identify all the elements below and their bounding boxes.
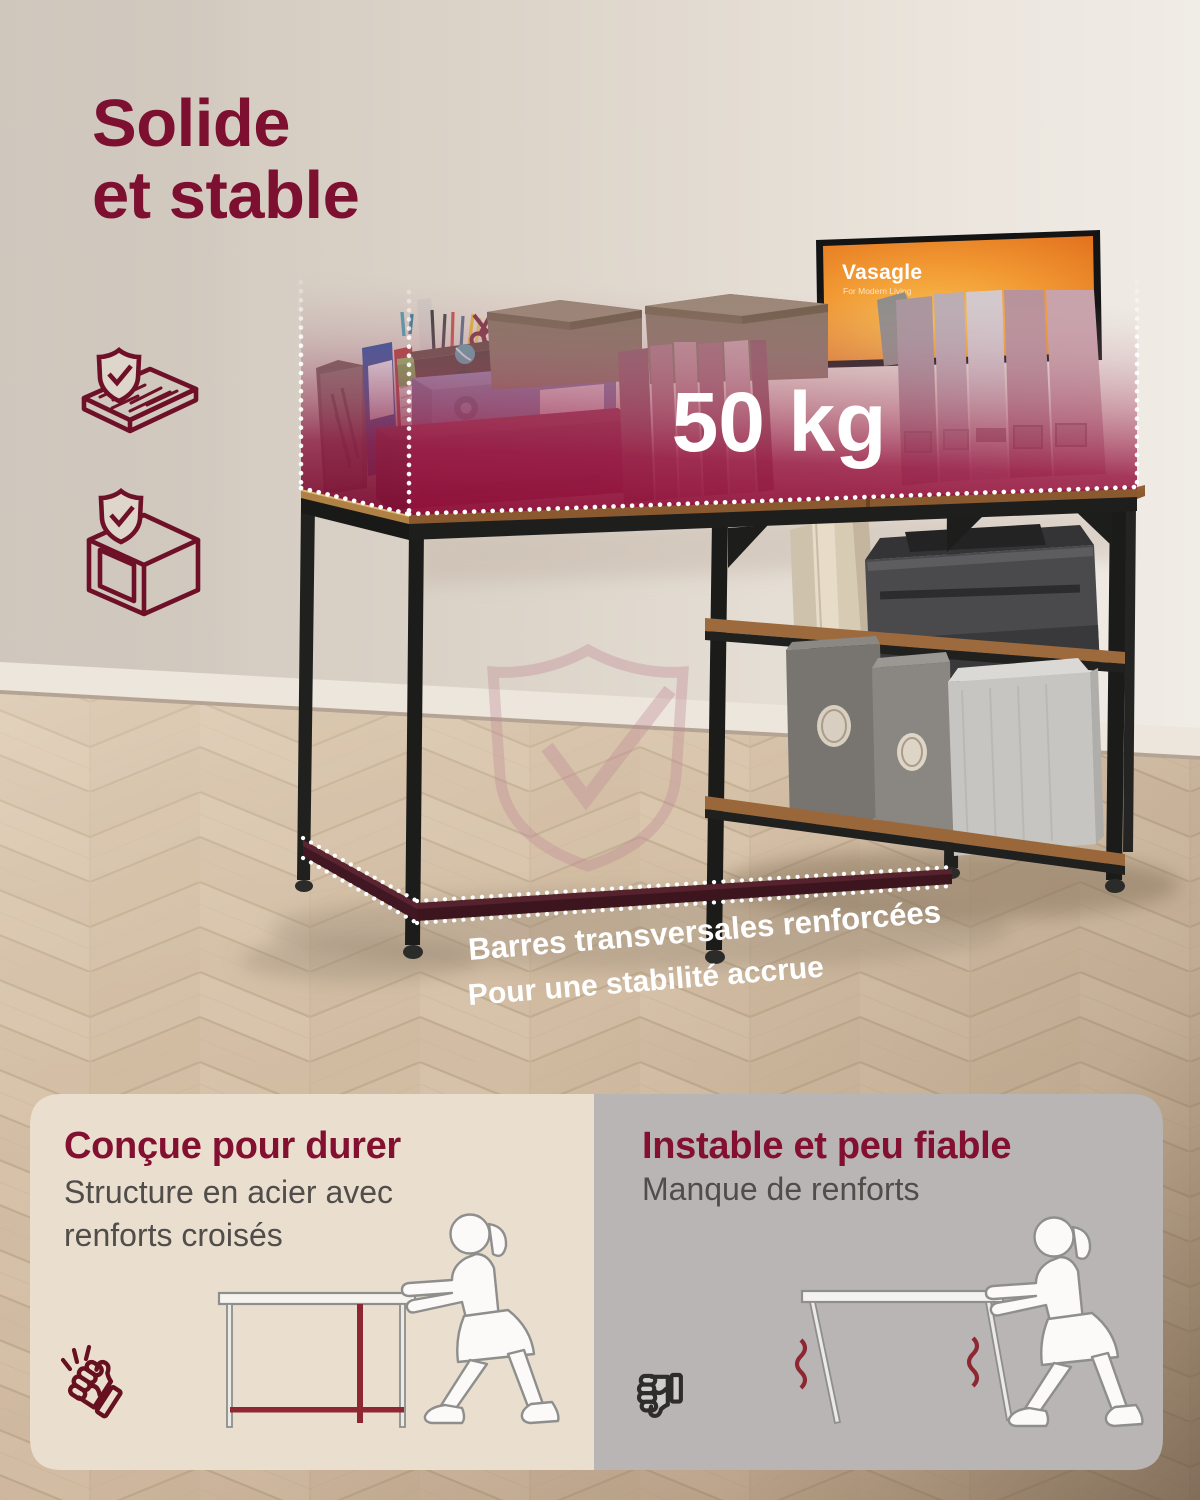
svg-text:renforts croisés: renforts croisés (64, 1217, 283, 1253)
svg-text:Conçue pour durer: Conçue pour durer (64, 1125, 401, 1167)
svg-text:Solide: Solide (92, 86, 290, 161)
svg-text:et stable: et stable (92, 158, 359, 233)
svg-text:50 kg: 50 kg (672, 375, 887, 469)
svg-text:Structure en acier avec: Structure en acier avec (64, 1174, 393, 1210)
svg-text:Instable et peu fiable: Instable et peu fiable (642, 1125, 1011, 1167)
svg-text:Manque de renforts: Manque de renforts (642, 1171, 920, 1207)
